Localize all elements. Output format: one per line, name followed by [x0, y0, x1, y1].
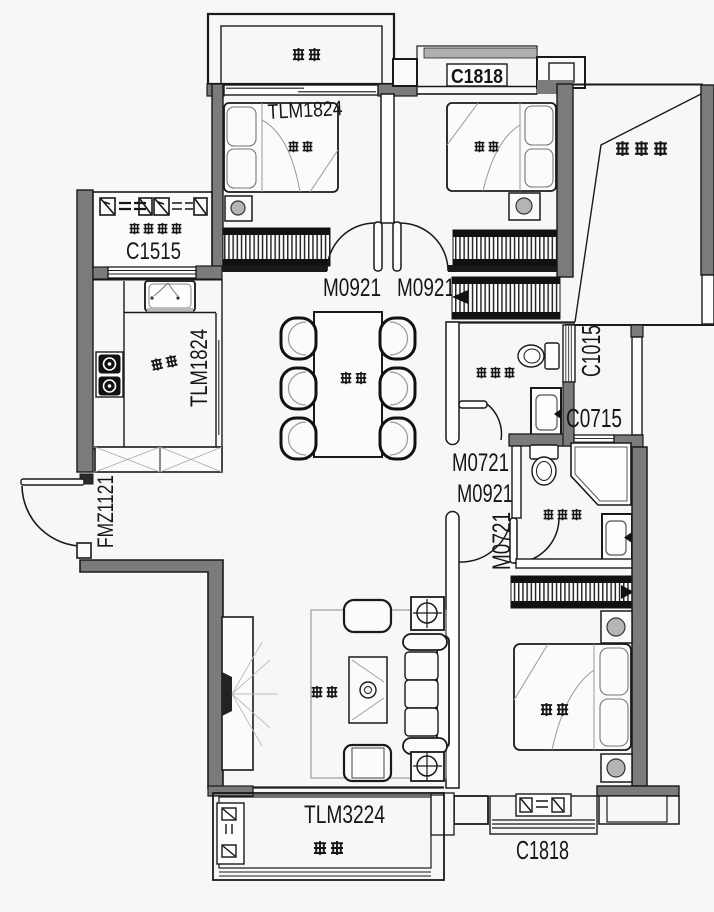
svg-text:FMZ1121: FMZ1121	[93, 475, 118, 548]
svg-text:C1515: C1515	[126, 238, 181, 265]
svg-text:M0921: M0921	[397, 274, 455, 302]
svg-text:M0721: M0721	[452, 449, 509, 477]
svg-text:TLM3224: TLM3224	[304, 801, 385, 829]
svg-text:C0715: C0715	[566, 403, 622, 433]
svg-text:M0921: M0921	[457, 480, 513, 508]
svg-text:TLM1824: TLM1824	[267, 97, 343, 124]
svg-text:C1818: C1818	[451, 66, 503, 88]
svg-text:C1818: C1818	[516, 835, 569, 865]
svg-text:C1015: C1015	[576, 325, 606, 377]
svg-text:TLM1824: TLM1824	[186, 329, 213, 407]
svg-text:M0921: M0921	[323, 274, 381, 302]
